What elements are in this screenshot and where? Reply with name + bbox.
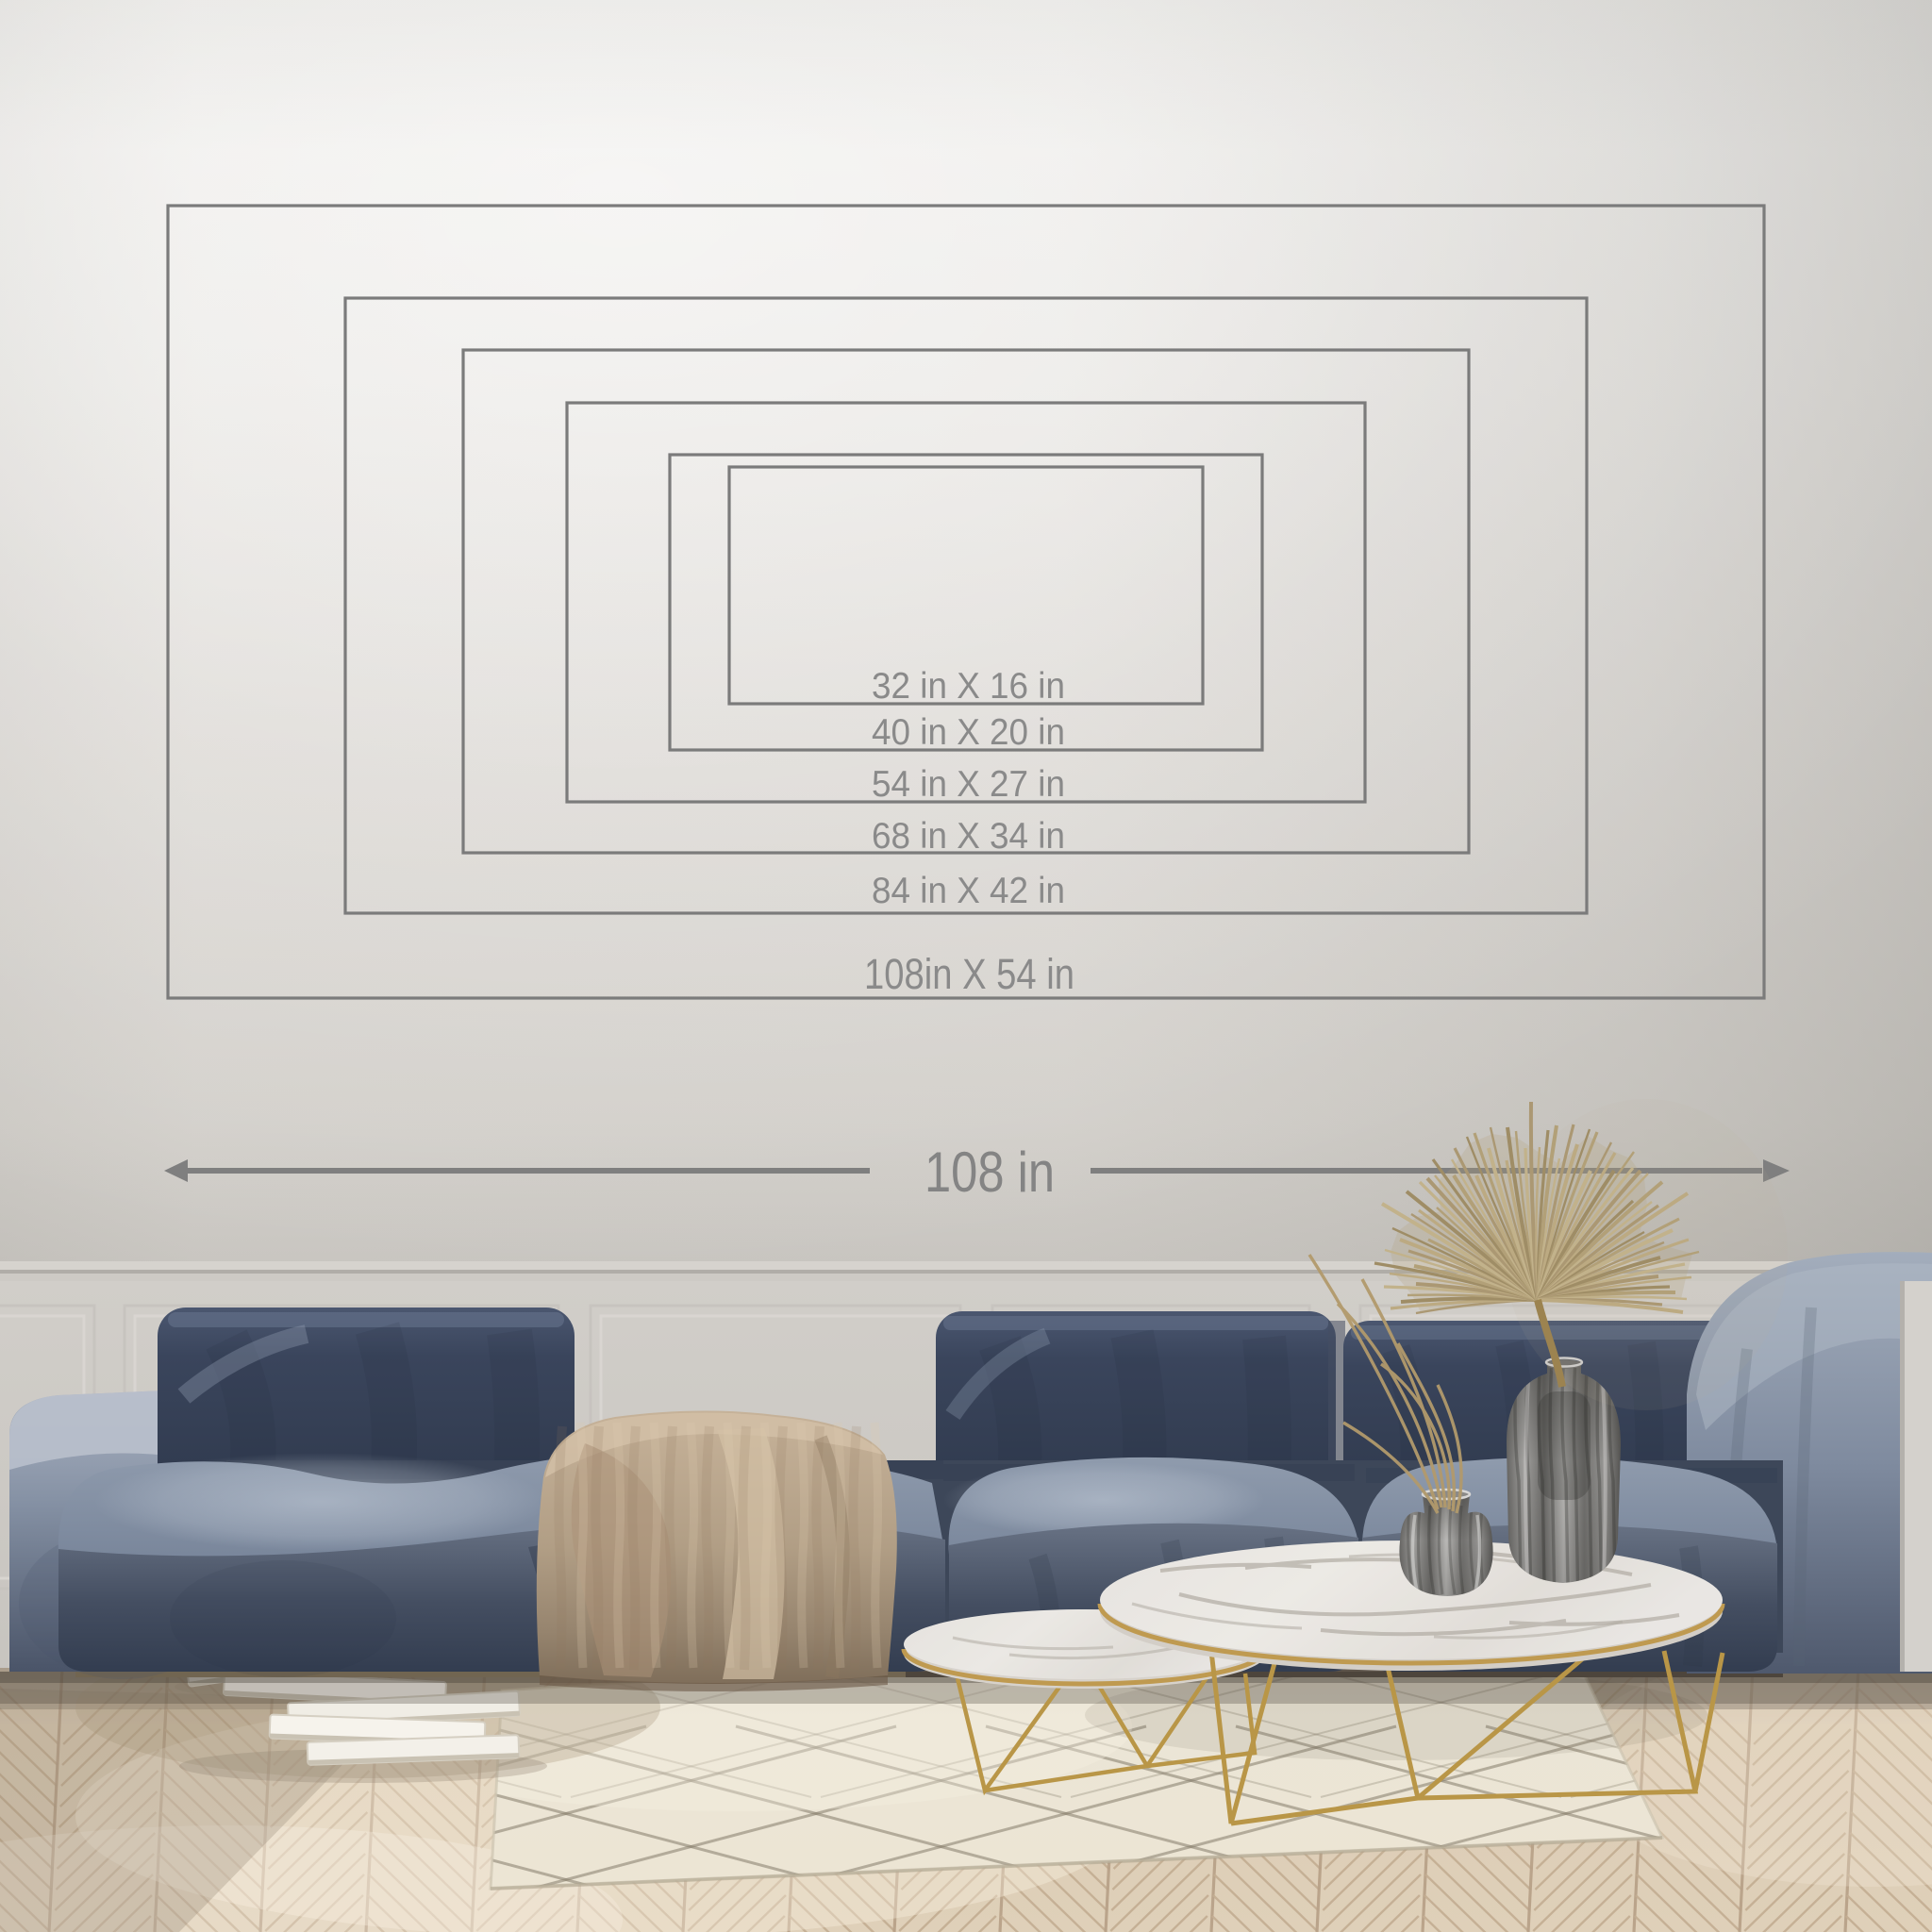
svg-text:84 in X 42 in: 84 in X 42 in [872,871,1065,911]
svg-text:108 in: 108 in [924,1141,1055,1204]
svg-text:68 in X 34 in: 68 in X 34 in [872,816,1065,857]
svg-text:40 in X 20 in: 40 in X 20 in [872,712,1065,753]
svg-text:32 in X 16 in: 32 in X 16 in [872,666,1065,707]
svg-text:108in X 54 in: 108in X 54 in [864,950,1074,998]
svg-text:54 in X 27 in: 54 in X 27 in [872,764,1065,805]
